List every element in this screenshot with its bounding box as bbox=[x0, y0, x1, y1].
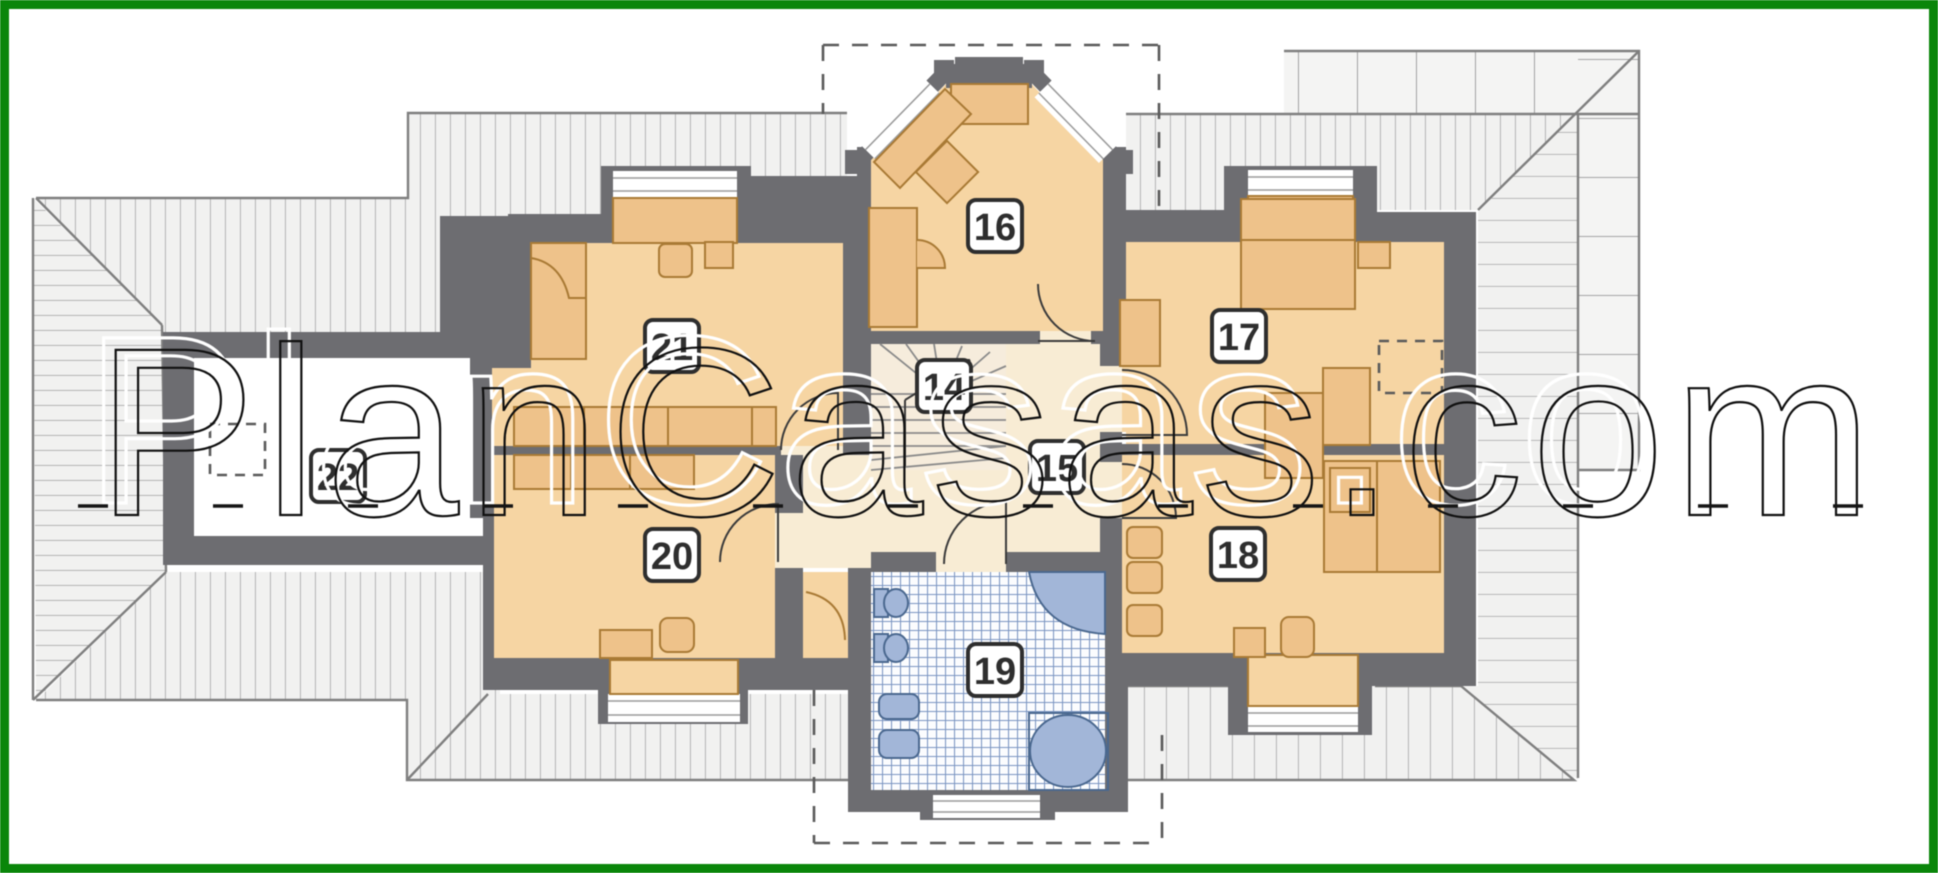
svg-text:PlanCasas.com: PlanCasas.com bbox=[96, 298, 1881, 566]
svg-text:19: 19 bbox=[974, 651, 1016, 693]
svg-text:16: 16 bbox=[974, 207, 1016, 249]
